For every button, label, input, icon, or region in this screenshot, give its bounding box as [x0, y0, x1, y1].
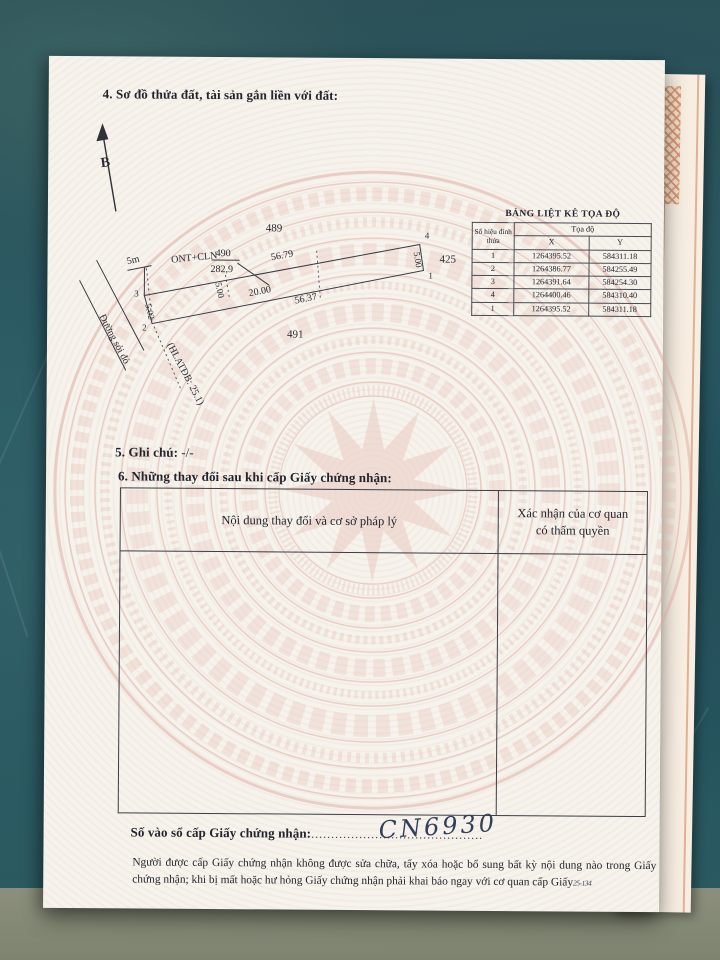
- adjacent-parcel-489: 489: [266, 222, 283, 234]
- table-row: 4 1264400.46 584310.40: [472, 289, 651, 303]
- edge-length-left: 5.02: [143, 303, 156, 321]
- coord-x: 1264395.52: [514, 249, 589, 263]
- arrowhead: [96, 123, 108, 141]
- col-coords-header: Tọa độ: [514, 223, 651, 237]
- vertex-id: 2: [472, 262, 514, 276]
- register-number-line: Số vào sổ cấp Giấy chứng nhận:..........…: [131, 824, 631, 843]
- vertex-1: 1: [428, 271, 433, 281]
- table-row: 1 1264395.52 584311.18: [472, 249, 651, 263]
- edge-length-top: 56.79: [270, 248, 294, 263]
- adjacent-parcel-491: 491: [287, 329, 304, 341]
- section5-note: 5. Ghi chú: -/-: [115, 444, 194, 461]
- road-edge: [96, 260, 145, 350]
- certificate-page: 4. Sơ đồ thửa đất, tài sản gắn liền với …: [43, 56, 665, 912]
- footer-line1: Người được cấp Giấy chứng nhận không đượ…: [132, 856, 630, 871]
- coord-x: 1264386.77: [514, 262, 589, 276]
- changes-confirm-header: Xác nhận của cơ quan có thẩm quyền: [499, 491, 647, 554]
- adjacent-parcel-425: 425: [440, 254, 457, 266]
- changes-content-header: Nội dung thay đổi và cơ sở pháp lý: [121, 488, 498, 553]
- coord-y: 584254.30: [589, 276, 651, 290]
- coord-x: 1264400.46: [514, 289, 589, 303]
- coord-x: 1264391.64: [514, 276, 589, 290]
- edge-length-bottom: 56.37: [294, 292, 318, 307]
- setback-label: 5m: [126, 254, 141, 268]
- table-row: 3 1264391.64 584254.30: [472, 275, 651, 289]
- parcel-area: 282,9: [210, 264, 233, 275]
- col-x-header: X: [514, 236, 589, 250]
- vertex-id: 1: [472, 249, 514, 263]
- handwritten-mark: 25-134: [573, 879, 591, 888]
- vertex-id: 3: [472, 275, 514, 289]
- edge-length-right: 5.00: [412, 251, 425, 269]
- col-vertex-header: Số hiệu đỉnh thửa: [472, 222, 514, 249]
- north-arrow: B: [92, 121, 133, 217]
- edge-length-partial: 20.00: [248, 284, 272, 299]
- photo-background: 4. Sơ đồ thửa đất, tài sản gắn liền với …: [0, 0, 720, 960]
- table-row: 2 1264386.77 584255.49: [472, 262, 651, 276]
- inner-dimension: 5.00: [213, 281, 226, 299]
- section4-title: 4. Sơ đồ thửa đất, tài sản gắn liền với …: [103, 86, 338, 104]
- coordinate-table-title: BẢNG LIỆT KÊ TỌA ĐỘ: [472, 209, 654, 220]
- vertex-id: 1: [472, 302, 514, 316]
- corridor-label: (HLATĐB: 25.1): [164, 341, 206, 407]
- section5-label: 5. Ghi chú:: [115, 444, 178, 459]
- section6-title: 6. Những thay đổi sau khi cấp Giấy chứng…: [118, 468, 392, 486]
- vertex-4: 4: [425, 230, 430, 240]
- footer-notice: Người được cấp Giấy chứng nhận không đượ…: [132, 854, 656, 892]
- parcel-diagram: 489 491 425 56.79 20.00 56.37 5.00 5.02 …: [78, 216, 520, 454]
- coord-y: 584310.40: [589, 289, 651, 303]
- col-y-header: Y: [589, 236, 651, 250]
- leader-line: [237, 263, 269, 285]
- vertex-3: 3: [134, 288, 139, 298]
- confirm-header-line1: Xác nhận của cơ quan: [517, 505, 628, 523]
- vertex-id: 4: [472, 289, 514, 303]
- north-label: B: [100, 155, 111, 171]
- sheet-edge-line: [683, 75, 700, 913]
- changes-table: Nội dung thay đổi và cơ sở pháp lý Xác n…: [118, 487, 648, 817]
- section5-value: -/-: [181, 445, 193, 460]
- coordinate-table: BẢNG LIỆT KÊ TỌA ĐỘ Số hiệu đỉnh thửa Tọ…: [471, 209, 654, 317]
- register-label: Số vào sổ cấp Giấy chứng nhận:: [131, 824, 312, 840]
- road-label: Đường sỏi đỏ: [97, 313, 132, 366]
- table-row: 1 1264395.52 584311.18: [472, 302, 651, 316]
- vertex-2: 2: [142, 323, 147, 333]
- coord-y: 584255.49: [589, 263, 651, 277]
- parcel-number: 490: [216, 248, 231, 259]
- coord-x: 1264395.52: [514, 302, 589, 316]
- coord-y: 584311.18: [589, 303, 651, 317]
- surface-scratch: [0, 523, 28, 638]
- coord-y: 584311.18: [589, 250, 651, 264]
- confirm-header-line2: có thẩm quyền: [536, 522, 610, 539]
